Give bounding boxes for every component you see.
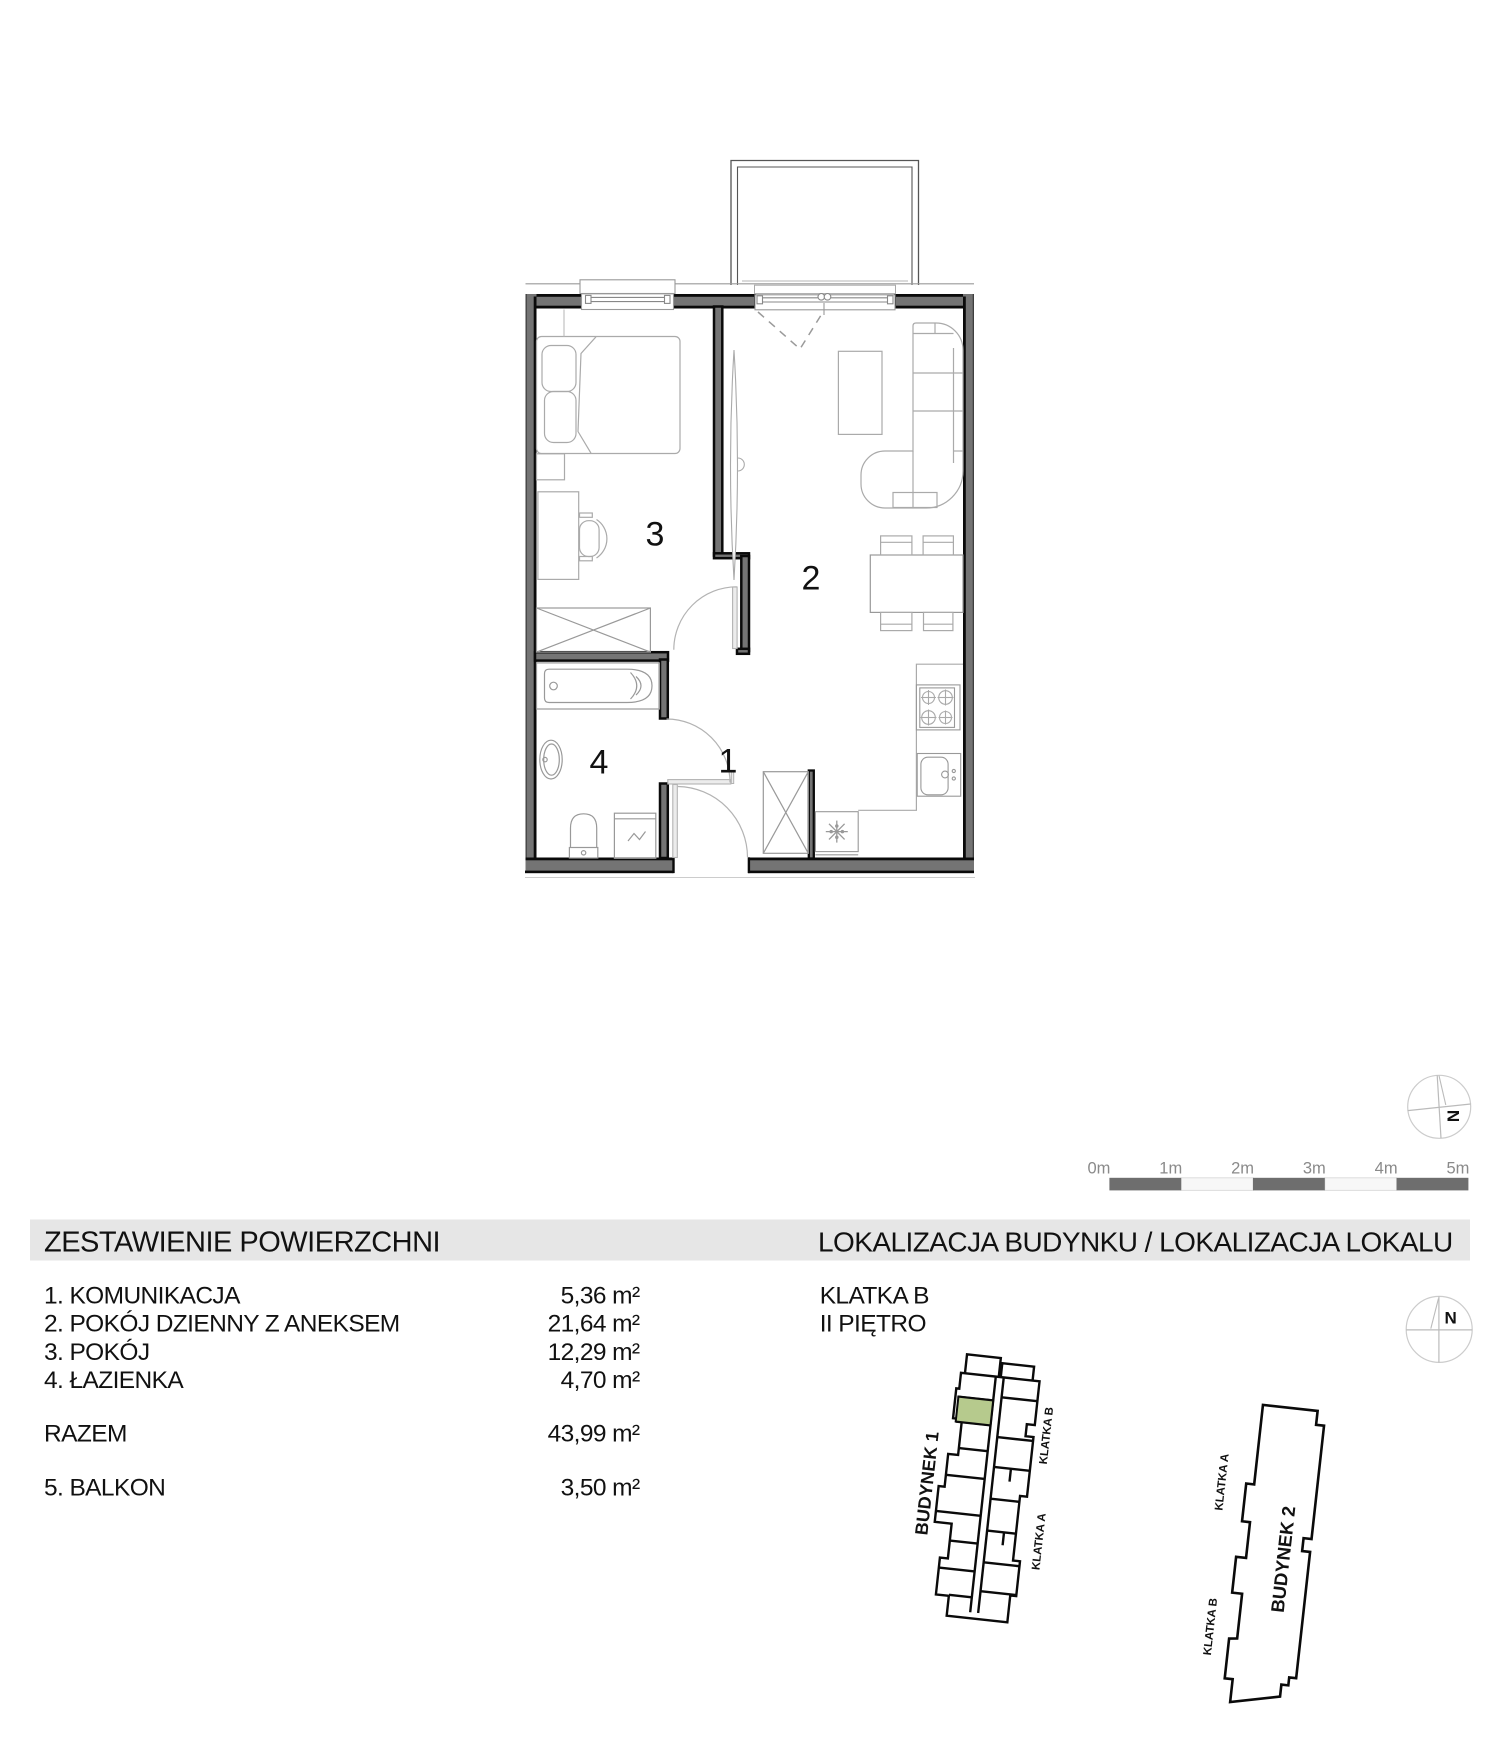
svg-text:5,36 m²: 5,36 m² <box>561 1283 640 1310</box>
svg-text:21,64 m²: 21,64 m² <box>548 1311 640 1338</box>
svg-text:43,99 m²: 43,99 m² <box>548 1420 640 1447</box>
svg-text:3: 3 <box>646 516 665 554</box>
svg-text:4. ŁAZIENKA: 4. ŁAZIENKA <box>44 1367 184 1394</box>
svg-text:N: N <box>1444 1110 1463 1122</box>
svg-text:N: N <box>1445 1309 1457 1328</box>
svg-text:2m: 2m <box>1231 1160 1254 1178</box>
svg-text:1. KOMUNIKACJA: 1. KOMUNIKACJA <box>44 1283 241 1310</box>
svg-text:1: 1 <box>719 743 738 781</box>
svg-text:2: 2 <box>802 560 821 598</box>
svg-text:4,70 m²: 4,70 m² <box>561 1367 640 1394</box>
svg-text:0m: 0m <box>1087 1160 1110 1178</box>
svg-text:2. POKÓJ DZIENNY Z ANEKSEM: 2. POKÓJ DZIENNY Z ANEKSEM <box>44 1311 400 1338</box>
svg-text:3. POKÓJ: 3. POKÓJ <box>44 1339 150 1366</box>
svg-text:1m: 1m <box>1159 1160 1182 1178</box>
svg-text:II PIĘTRO: II PIĘTRO <box>820 1311 926 1338</box>
svg-text:5. BALKON: 5. BALKON <box>44 1475 165 1502</box>
svg-text:LOKALIZACJA BUDYNKU / LOKALIZA: LOKALIZACJA BUDYNKU / LOKALIZACJA LOKALU <box>818 1227 1453 1258</box>
svg-text:RAZEM: RAZEM <box>44 1420 127 1447</box>
svg-text:KLATKA B: KLATKA B <box>820 1283 929 1310</box>
svg-text:4m: 4m <box>1375 1160 1398 1178</box>
svg-text:ZESTAWIENIE POWIERZCHNI: ZESTAWIENIE POWIERZCHNI <box>44 1227 440 1259</box>
svg-text:5m: 5m <box>1446 1160 1469 1178</box>
svg-text:3m: 3m <box>1303 1160 1326 1178</box>
svg-text:12,29 m²: 12,29 m² <box>548 1339 640 1366</box>
svg-text:4: 4 <box>590 744 609 782</box>
svg-text:3,50 m²: 3,50 m² <box>561 1475 640 1502</box>
